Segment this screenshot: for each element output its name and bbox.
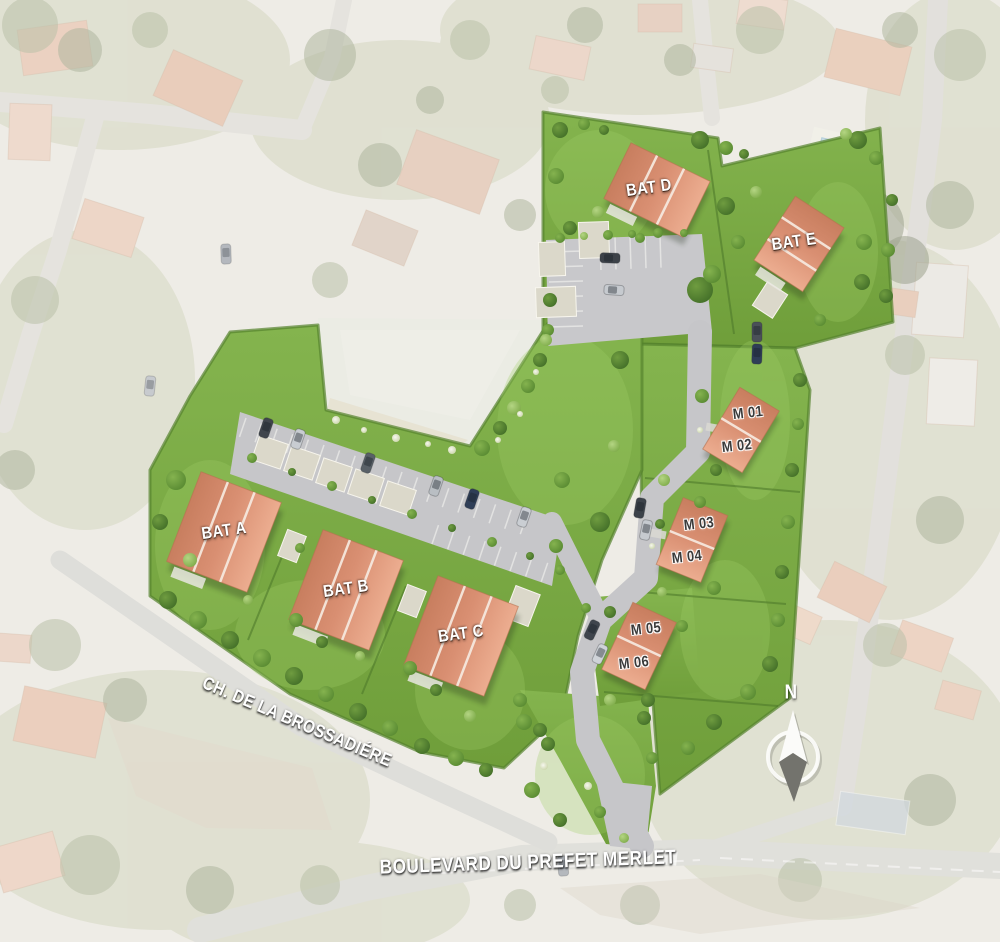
label-m04[interactable]: M 04	[671, 547, 703, 567]
site-plan: BAT A BAT B BAT C BAT D BAT E M 01 M 02 …	[0, 0, 1000, 942]
label-street-brossadiere: CH. DE LA BROSSADIÉRE	[199, 673, 395, 772]
label-bat-e[interactable]: BAT E	[770, 229, 817, 255]
label-m06[interactable]: M 06	[618, 653, 650, 673]
label-m01[interactable]: M 01	[732, 403, 764, 423]
label-m02[interactable]: M 02	[721, 436, 753, 456]
label-bat-b[interactable]: BAT B	[322, 576, 370, 602]
label-compass-north: N	[785, 682, 798, 705]
label-bat-a[interactable]: BAT A	[200, 518, 248, 544]
label-bat-d[interactable]: BAT D	[625, 175, 673, 201]
label-m03[interactable]: M 03	[683, 514, 715, 534]
label-street-boulevard: BOULEVARD DU PREFET MERLET	[379, 846, 676, 879]
label-bat-c[interactable]: BAT C	[437, 621, 485, 647]
labels-layer: BAT A BAT B BAT C BAT D BAT E M 01 M 02 …	[0, 0, 1000, 942]
label-m05[interactable]: M 05	[630, 619, 662, 639]
